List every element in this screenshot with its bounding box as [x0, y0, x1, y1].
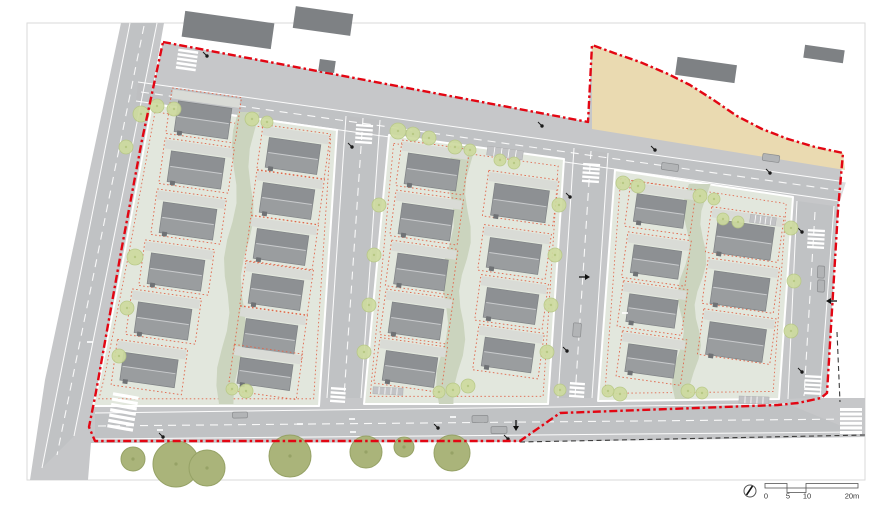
tree — [261, 116, 273, 128]
tree — [226, 383, 238, 395]
tree — [784, 221, 798, 235]
car — [232, 412, 247, 418]
tree — [548, 248, 562, 262]
car — [817, 280, 825, 292]
site-plan-viewport: 0 5 10 20m — [0, 0, 882, 526]
tree — [544, 298, 558, 312]
tree — [448, 140, 462, 154]
road-marking — [622, 312, 628, 314]
road-marking — [87, 341, 93, 343]
chimney — [177, 131, 183, 136]
tree — [120, 301, 134, 315]
chimney — [636, 220, 642, 225]
chimney — [713, 302, 719, 307]
chimney — [708, 353, 714, 358]
tree — [693, 189, 707, 203]
tree — [708, 193, 720, 205]
tree — [461, 379, 475, 393]
chimney — [170, 181, 176, 186]
tree — [732, 216, 744, 228]
site-plan-canvas: 0 5 10 20m — [0, 0, 882, 526]
tree — [372, 198, 386, 212]
car — [817, 266, 825, 278]
large-tree — [189, 450, 225, 486]
tree — [362, 298, 376, 312]
tree — [613, 387, 627, 401]
tree — [787, 274, 801, 288]
north-arrow-icon — [744, 485, 756, 497]
tree — [552, 198, 566, 212]
chimney — [627, 370, 633, 375]
tree — [446, 383, 460, 397]
tree — [631, 179, 645, 193]
tree — [119, 140, 133, 154]
chimney — [122, 379, 128, 384]
chimney — [633, 271, 639, 276]
road-marking — [349, 418, 355, 420]
chimney — [162, 232, 168, 237]
tree — [602, 385, 614, 397]
parking-strip — [373, 387, 403, 396]
scale-bar: 0 5 10 20m — [744, 484, 859, 501]
scale-label-20m: 20m — [845, 492, 860, 501]
road-marking — [157, 429, 163, 431]
tree — [494, 154, 506, 166]
tree — [681, 384, 695, 398]
road-marking — [450, 416, 456, 418]
chimney — [150, 283, 156, 288]
scale-segment-10-20 — [806, 484, 858, 489]
chimney — [493, 214, 499, 219]
tree — [127, 249, 143, 265]
chimney — [251, 302, 257, 307]
chimney — [391, 332, 397, 337]
scale-label-5: 5 — [786, 492, 790, 501]
scale-segment-0-5 — [765, 484, 787, 489]
chimney — [716, 251, 722, 256]
tree — [784, 324, 798, 338]
chimney — [489, 266, 495, 271]
tree — [167, 102, 181, 116]
tree — [390, 123, 406, 139]
tree — [150, 99, 164, 113]
chimney — [137, 332, 143, 337]
chimney — [484, 365, 490, 370]
tree — [112, 349, 126, 363]
car — [472, 415, 488, 422]
tree — [540, 345, 554, 359]
chimney — [256, 257, 262, 262]
tree — [239, 384, 253, 398]
parking-strip — [739, 396, 769, 404]
large-tree — [121, 447, 145, 471]
tree — [696, 387, 708, 399]
tree — [406, 127, 420, 141]
context-building — [318, 59, 336, 73]
chimney — [486, 316, 492, 321]
car — [491, 426, 507, 433]
tree — [508, 157, 520, 169]
chimney — [268, 166, 274, 171]
chimney — [396, 283, 402, 288]
tree — [554, 384, 566, 396]
tree — [616, 176, 630, 190]
car — [573, 323, 582, 338]
scale-label-10: 10 — [803, 492, 811, 501]
chimney — [407, 183, 413, 188]
road-marking — [350, 431, 356, 433]
road-marking — [297, 423, 303, 425]
scale-label-0: 0 — [764, 492, 768, 501]
chimney — [385, 379, 391, 384]
tree — [245, 112, 259, 126]
tree — [422, 131, 436, 145]
chimney — [401, 233, 407, 238]
tree — [357, 345, 371, 359]
tree — [433, 386, 445, 398]
tree — [717, 213, 729, 225]
tree — [464, 144, 476, 156]
tree — [367, 248, 381, 262]
chimney — [628, 320, 634, 325]
chimney — [262, 211, 268, 216]
